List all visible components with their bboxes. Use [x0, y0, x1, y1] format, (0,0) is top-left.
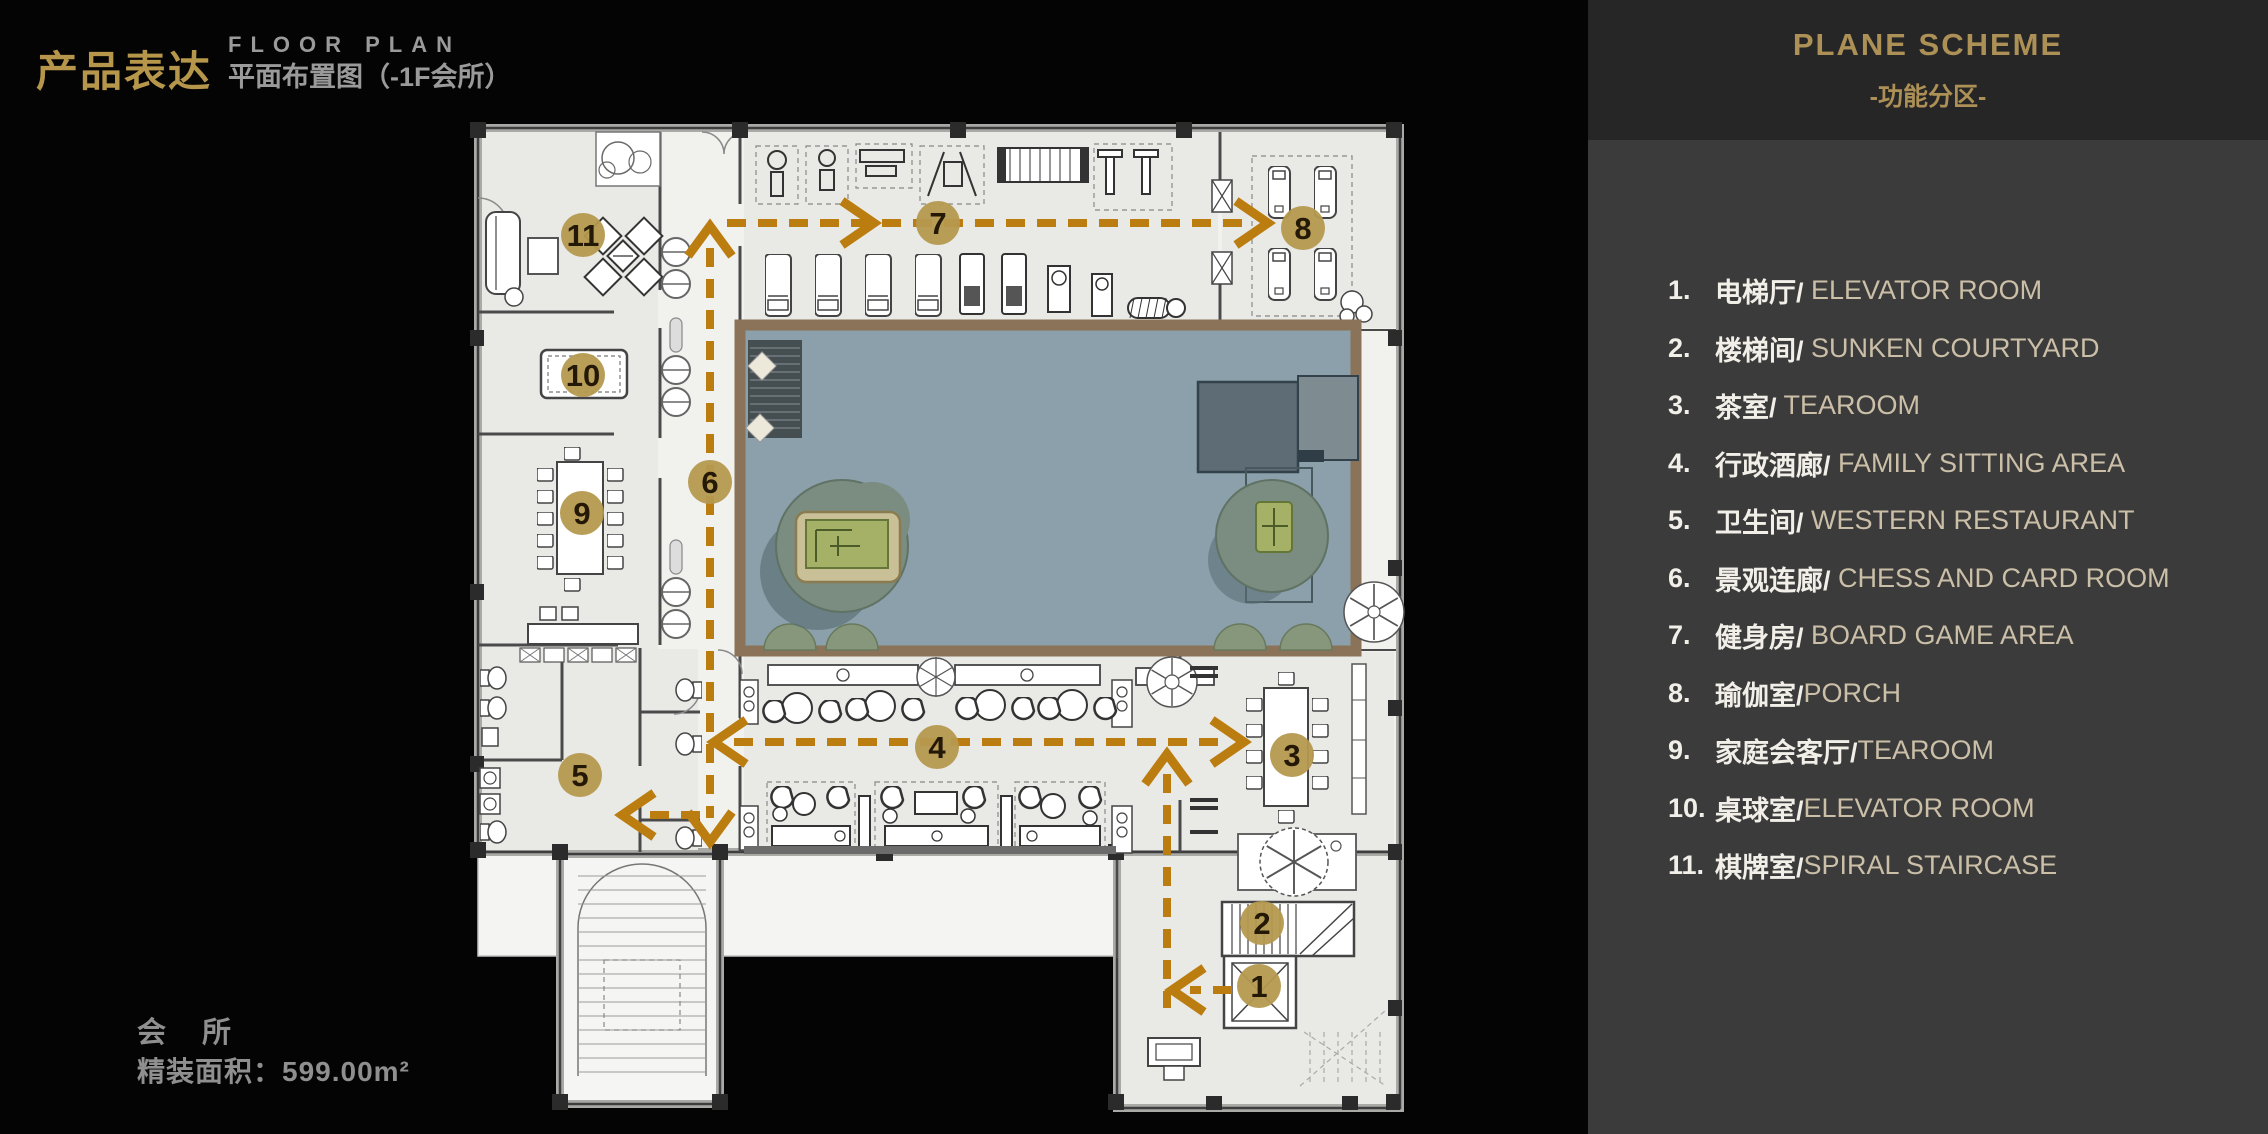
legend-item: 5.卫生间/ WESTERN RESTAURANT — [1668, 492, 2268, 550]
legend-item: 3.茶室/ TEAROOM — [1668, 377, 2268, 435]
room-marker-label: 1 — [1250, 969, 1267, 1004]
room-marker-label: 8 — [1294, 211, 1311, 246]
legend-item: 8.瑜伽室/PORCH — [1668, 665, 2268, 723]
club-label: 会 所 — [137, 1014, 410, 1052]
sunken-courtyard — [740, 325, 1404, 651]
room-marker-label: 5 — [571, 758, 588, 793]
legend-item: 10.桌球室/ELEVATOR ROOM — [1668, 780, 2268, 838]
room-marker-label: 6 — [701, 465, 718, 500]
room-marker-label: 2 — [1253, 906, 1270, 941]
room-marker-label: 3 — [1283, 738, 1300, 773]
legend-item: 7.健身房/ BOARD GAME AREA — [1668, 607, 2268, 665]
legend-item: 11.棋牌室/SPIRAL STAIRCASE — [1668, 837, 2268, 895]
area-label: 精装面积：599.00m² — [137, 1052, 410, 1092]
footer: 会 所 精装面积：599.00m² — [137, 1014, 410, 1092]
room-marker-label: 10 — [566, 358, 600, 393]
room-marker-label: 9 — [573, 496, 590, 531]
slide: 产品表达 FLOOR PLAN 平面布置图（-1F会所） — [0, 0, 2268, 1134]
legend-item: 4.行政酒廊/ FAMILY SITTING AREA — [1668, 435, 2268, 493]
legend-item: 9.家庭会客厅/TEAROOM — [1668, 722, 2268, 780]
legend-item: 6.景观连廊/ CHESS AND CARD ROOM — [1668, 550, 2268, 608]
room-marker-label: 4 — [928, 730, 946, 765]
legend-item: 2.楼梯间/ SUNKEN COURTYARD — [1668, 320, 2268, 378]
legend-panel: PLANE SCHEME -功能分区- 1.电梯厅/ ELEVATOR ROOM… — [1588, 0, 2268, 1134]
legend-title: PLANE SCHEME — [1793, 27, 2063, 63]
legend-subtitle: -功能分区- — [1870, 77, 1987, 113]
room-marker-label: 7 — [929, 206, 946, 241]
legend-header: PLANE SCHEME -功能分区- — [1588, 0, 2268, 140]
legend-item: 1.电梯厅/ ELEVATOR ROOM — [1668, 262, 2268, 320]
room-marker-label: 11 — [567, 218, 600, 253]
